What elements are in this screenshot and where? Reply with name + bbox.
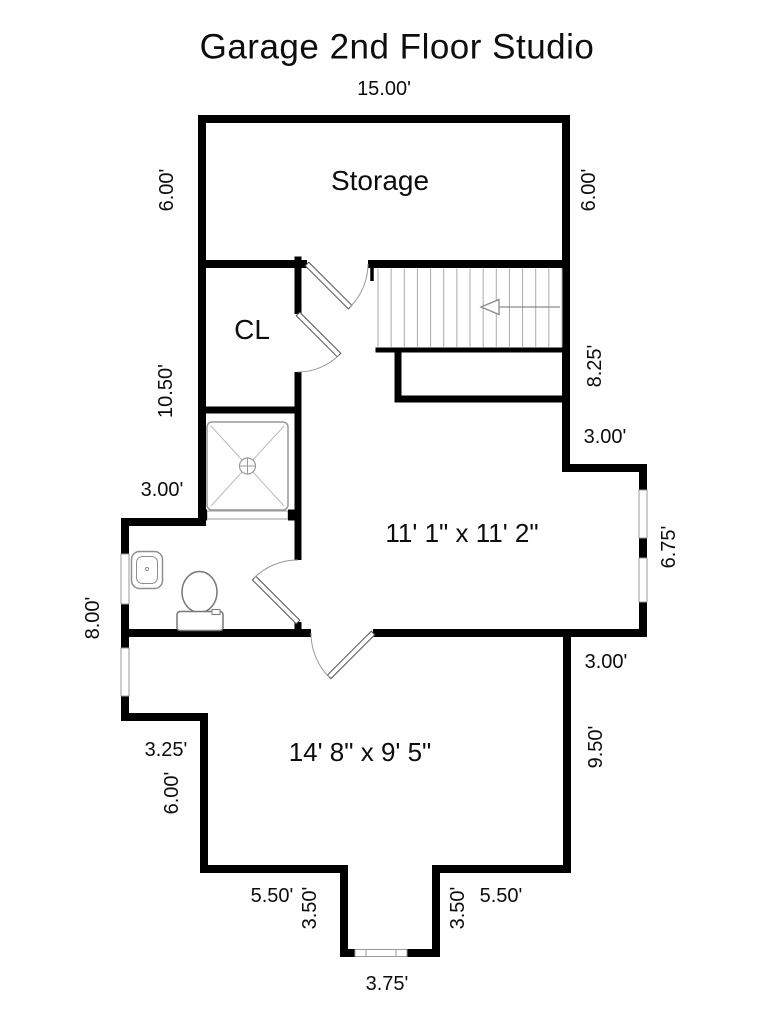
floor-plan: Garage 2nd Floor Studio Storage CL 11' 1… (0, 0, 768, 1024)
dim-stairwell-right-height: 8.25' (585, 345, 605, 388)
floor-plan-drawing (0, 0, 768, 1024)
dim-alcove-width: 3.75' (366, 974, 409, 994)
dim-bottom-right-width: 5.50' (480, 886, 523, 906)
bonus-left-window (121, 648, 129, 696)
shower (199, 422, 297, 521)
dim-bump-top-width: 3.00' (584, 427, 627, 447)
toilet (177, 572, 223, 631)
dim-storage-right-height: 6.00' (579, 169, 599, 212)
dim-left-mid-height: 10.50' (156, 364, 176, 418)
bath-window (121, 554, 129, 604)
dim-bottom-step-width: 3.25' (145, 740, 188, 760)
door-openings (294, 259, 373, 638)
dim-bottom-left-width: 5.50' (251, 886, 294, 906)
dim-bath-step-width: 3.00' (141, 480, 184, 500)
dim-bottom-left-height: 6.00' (162, 772, 182, 815)
room-size-bonus-room: 14' 8" x 9' 5" (289, 739, 432, 765)
dim-storage-left-height: 6.00' (157, 169, 177, 212)
alcove-window (355, 950, 407, 957)
staircase (378, 269, 562, 348)
bonus-room-door (311, 631, 375, 678)
studio-window-bottom (639, 558, 647, 602)
shower-curb (207, 511, 288, 519)
dim-left-lower-height: 8.00' (83, 597, 103, 640)
sink-drain-icon (145, 567, 148, 570)
dim-bump-bottom-width: 3.00' (585, 652, 628, 672)
dim-bump-right-height: 6.75' (659, 526, 679, 569)
plan-title: Garage 2nd Floor Studio (200, 30, 595, 65)
dim-alcove-right-depth: 3.50' (448, 887, 468, 930)
dim-top-width: 15.00' (357, 79, 411, 99)
dim-alcove-left-depth: 3.50' (300, 887, 320, 930)
toilet-flush-handle (212, 610, 220, 615)
toilet-bowl (182, 572, 217, 613)
studio-window-top (639, 490, 647, 538)
room-label-closet: CL (234, 316, 270, 344)
storage-door (305, 262, 368, 309)
stair-direction-arrow (481, 300, 560, 315)
room-label-storage: Storage (331, 167, 429, 195)
bathroom-door (252, 560, 299, 624)
sink (132, 552, 163, 589)
exterior-walls (125, 119, 643, 953)
room-size-studio: 11' 1" x 11' 2" (385, 520, 538, 546)
dim-bottom-right-height: 9.50' (586, 726, 606, 769)
